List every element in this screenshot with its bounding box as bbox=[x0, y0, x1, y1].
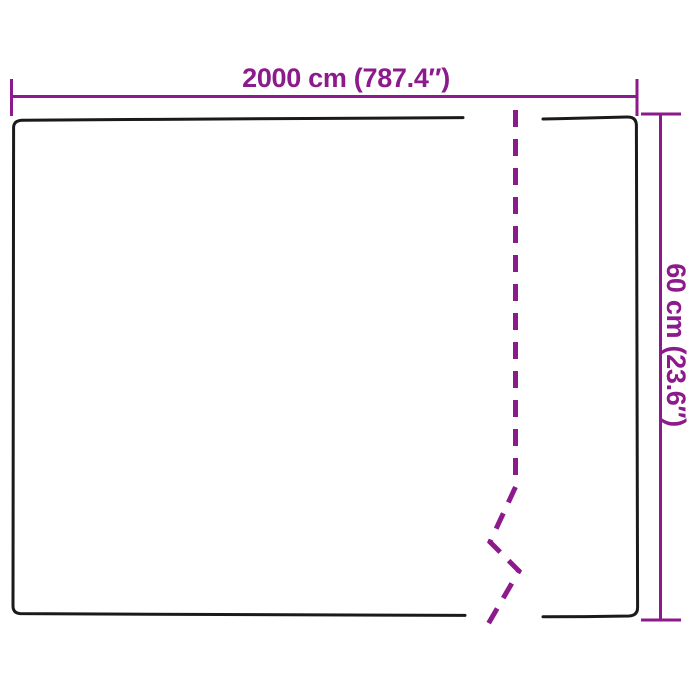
product-outline-left bbox=[13, 118, 465, 616]
height-dimension-label: 60 cm (23.6″) bbox=[661, 263, 691, 427]
width-dimension: 2000 cm (787.4″) bbox=[11, 63, 637, 116]
height-dimension: 60 cm (23.6″) bbox=[641, 114, 691, 620]
diagram-canvas: 2000 cm (787.4″) 60 cm (23.6″) bbox=[0, 0, 700, 700]
product-dimension-diagram: 2000 cm (787.4″) 60 cm (23.6″) bbox=[0, 0, 700, 700]
width-dimension-label: 2000 cm (787.4″) bbox=[242, 63, 450, 93]
fold-dashed-line bbox=[487, 110, 519, 626]
product-outline-right bbox=[543, 117, 638, 617]
